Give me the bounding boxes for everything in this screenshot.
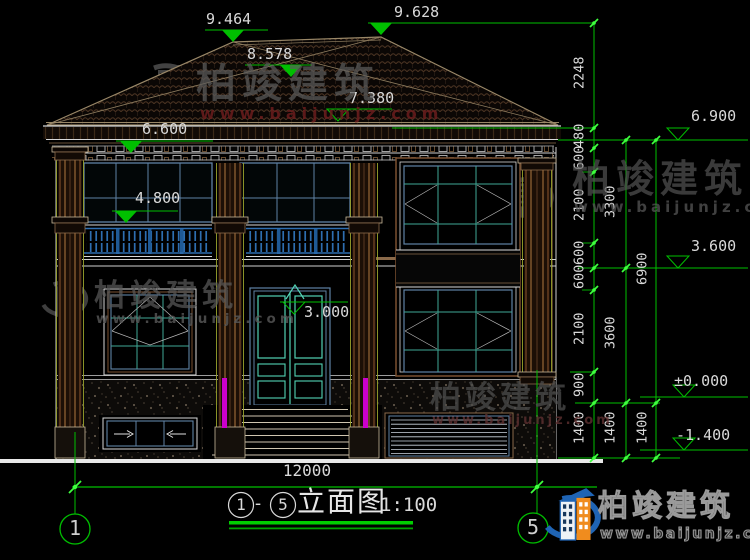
axis-bubble-5: 5 (518, 517, 548, 537)
dim-a-600c: 600 (573, 249, 587, 305)
dim-c-6900: 6900 (636, 241, 650, 297)
elevation-drawing-canvas: 9.464 9.628 8.578 7.380 6.600 4.800 3.00… (0, 0, 750, 560)
brand-logo-icon (547, 488, 597, 540)
axis-bubble-1: 1 (60, 518, 90, 538)
right-window-stack (396, 158, 520, 376)
downspout-right (363, 378, 368, 428)
dim-a-2248: 2248 (573, 45, 587, 101)
level-label-eave-bottom: 6.900 (691, 109, 736, 124)
watermark-url-right: www.baijunjz.com (574, 200, 750, 215)
level-label-ground-floor: ±0.000 (674, 374, 728, 389)
title-axis-start: 1 (228, 497, 254, 513)
watermark-brand-top: 柏竣建筑 (196, 64, 380, 104)
watermark-url-top: www.baijunjz.com (200, 106, 443, 122)
level-label-roof-mid: 8.578 (247, 47, 292, 62)
level-label-window-head: 6.600 (142, 122, 187, 137)
level-label-site: -1.400 (676, 428, 730, 443)
drawing-title: 立面图 (297, 488, 387, 516)
downspout-left (222, 378, 227, 428)
dim-c-1400: 1400 (636, 400, 650, 456)
level-label-ridge-right: 9.628 (394, 5, 439, 20)
level-label-ridge-left: 9.464 (206, 12, 251, 27)
watermark-brand-bottom: 柏竣建筑 (430, 383, 570, 414)
drawing-scale: 1:100 (380, 496, 437, 515)
brand-logo-url: www.baijunjz.com (600, 527, 750, 541)
watermark-url-left: www.baijunjz.com (96, 313, 298, 327)
dim-total-width: 12000 (277, 463, 337, 479)
watermark-brand-right: 柏竣建筑 (572, 160, 748, 198)
watermark-brand-left: 柏竣建筑 (94, 281, 238, 312)
level-label-window-sill: 4.800 (135, 191, 180, 206)
dim-a-2100b: 2100 (573, 301, 587, 357)
basement-window (99, 415, 201, 452)
dim-b-3600: 3600 (604, 305, 618, 361)
brand-logo-text: 柏竣建筑 (598, 492, 734, 522)
title-separator: - (252, 495, 264, 513)
level-label-door-head: 3.000 (304, 305, 349, 320)
watermark-url-bottom: www.baijunjz.com (432, 414, 613, 427)
title-axis-end: 5 (270, 497, 296, 513)
level-label-second-floor: 3.600 (691, 239, 736, 254)
